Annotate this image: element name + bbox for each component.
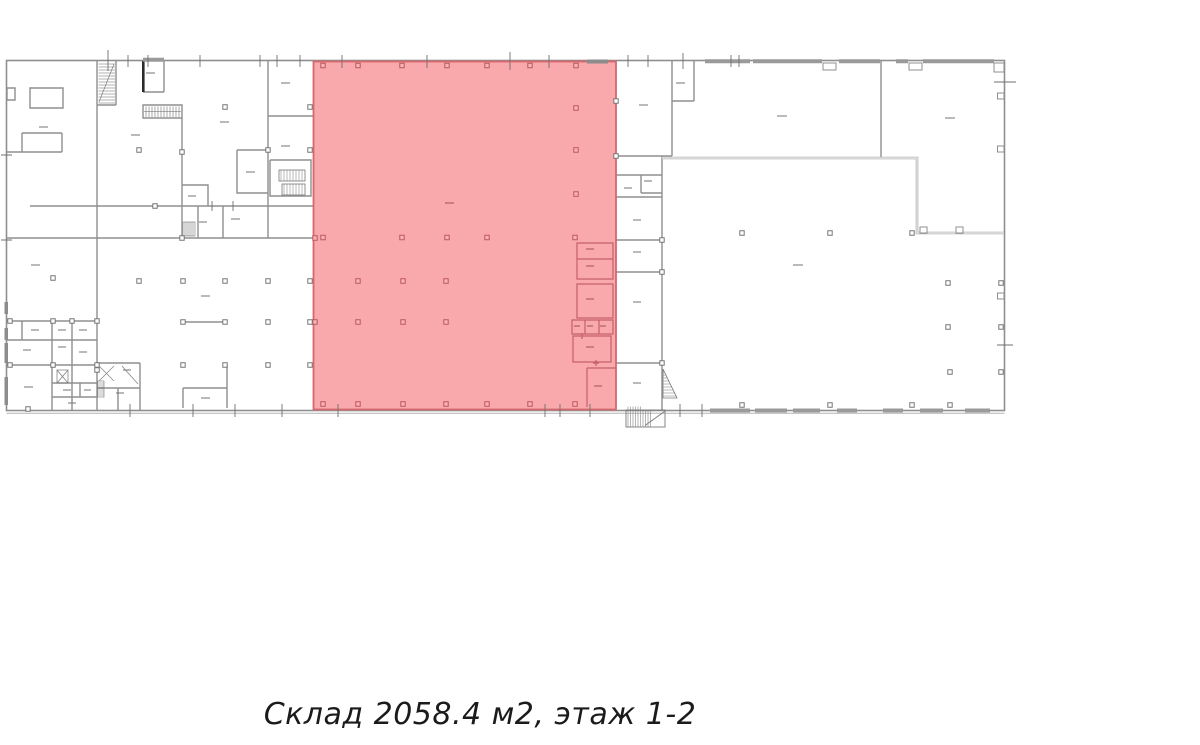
external-stair [626,407,665,428]
small-stair-cluster [98,381,105,397]
inner-room-boundary [662,158,1004,233]
right-block-walls [616,61,881,411]
floor-plan-drawing [0,0,1200,745]
floor-plan-page: Склад 2058.4 м2, этаж 1-2 [0,0,1200,745]
duct-shaft-x [57,370,68,383]
door-swing-lines [99,366,138,384]
left-block-walls [7,61,314,411]
door-notches [823,63,1004,299]
stair-double-flight [279,170,305,195]
stair-triangle [663,369,677,398]
stair-hatch-topleft [99,64,116,103]
plan-caption: Склад 2058.4 м2, этаж 1-2 [210,697,750,732]
highlighted-unit-area[interactable] [314,62,617,410]
shaft-hatch [183,222,195,236]
inner-room-boundary-core [662,158,1004,233]
highlighted-unit [313,62,616,410]
stair-hatch-mid [144,107,181,118]
